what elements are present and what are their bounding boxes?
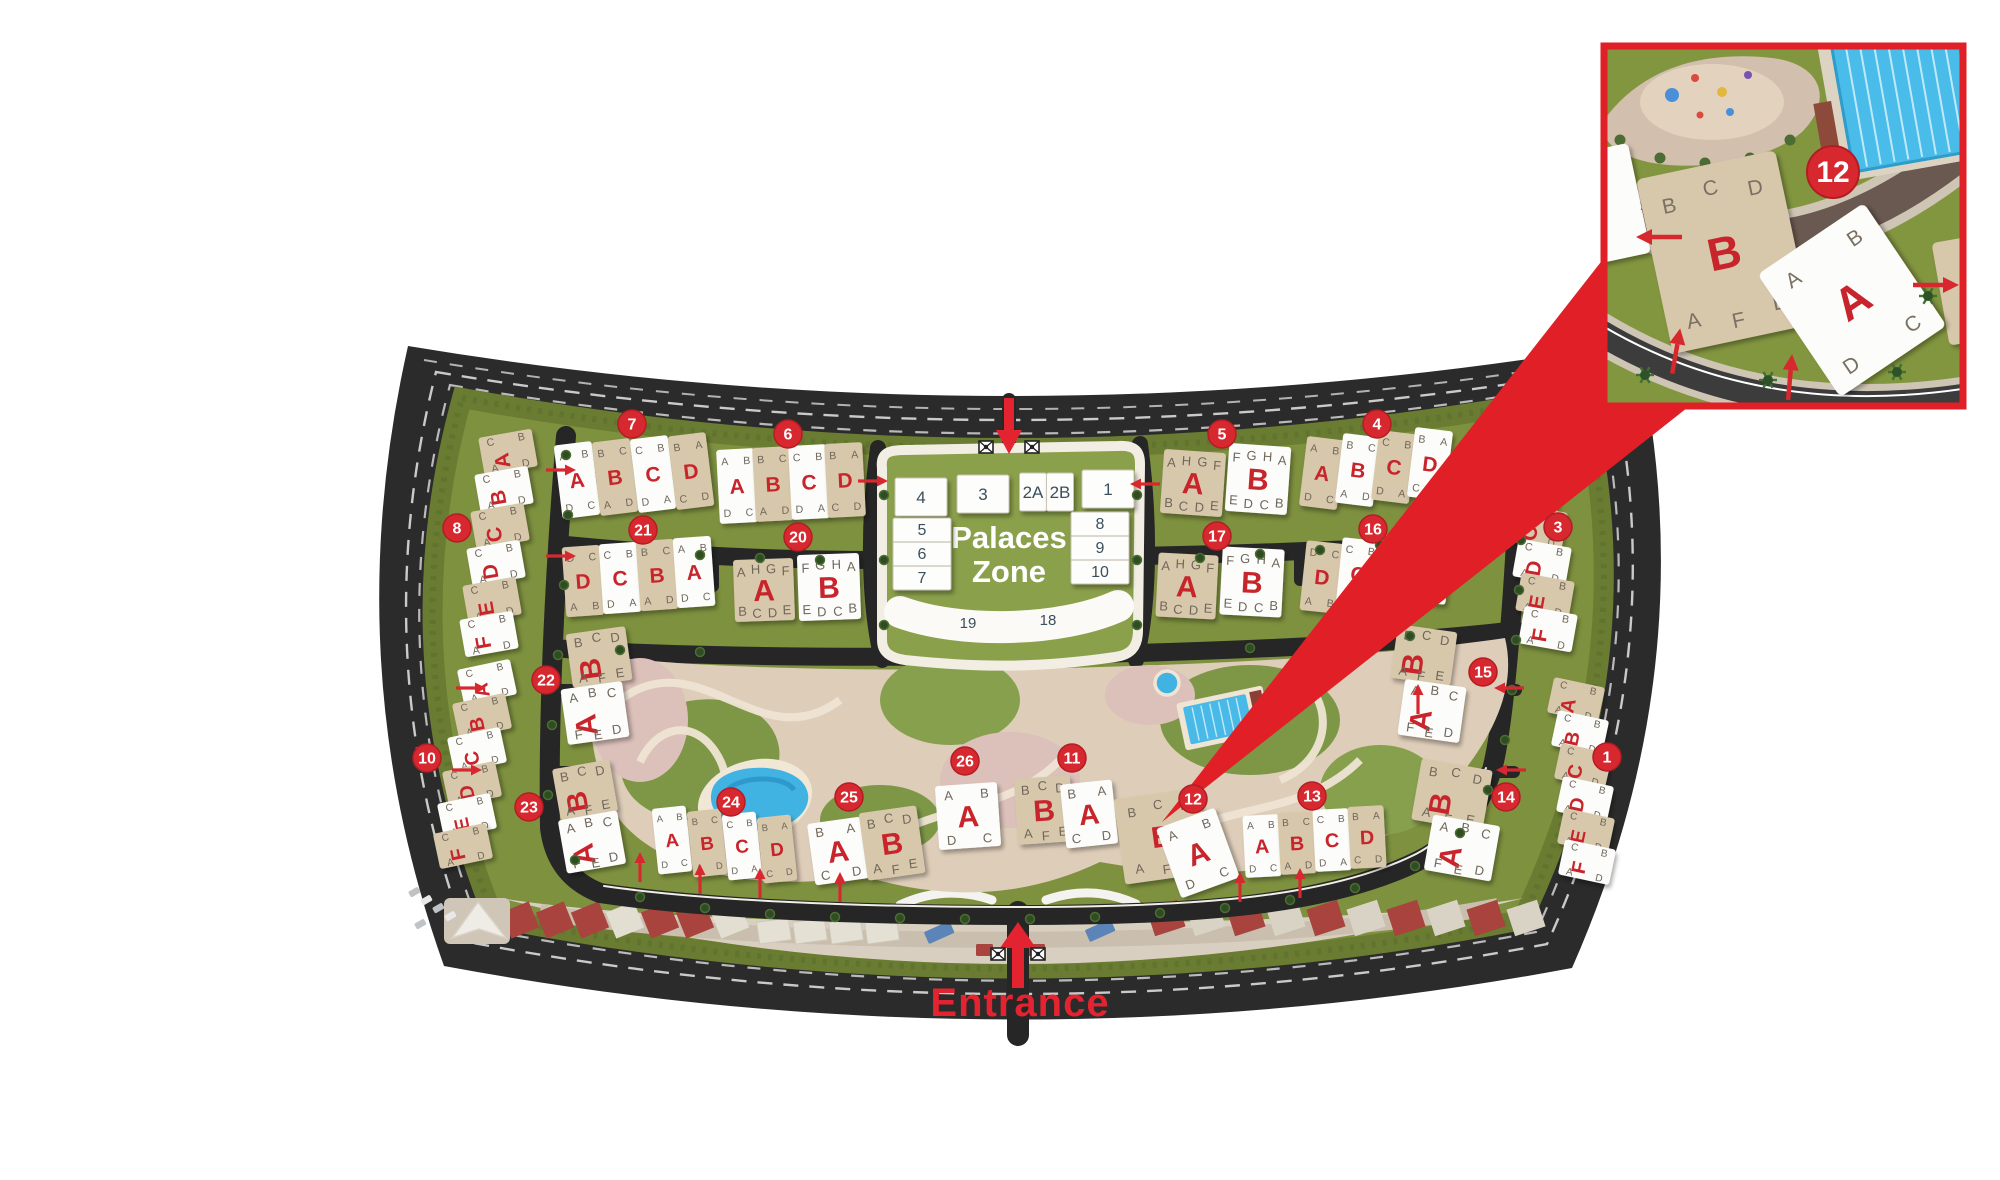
cluster-marker-13[interactable]: 13 <box>1298 782 1326 810</box>
svg-text:4: 4 <box>1373 417 1382 434</box>
building-24D[interactable]: DBACD <box>757 814 798 883</box>
unit-letter: D <box>785 867 793 879</box>
gate-icon <box>991 948 1005 960</box>
cluster-marker-8[interactable]: 8 <box>443 514 471 542</box>
unit-letter: C <box>680 858 688 870</box>
unit-letter: H <box>1181 453 1191 469</box>
unit-letter: H <box>1262 449 1272 465</box>
cluster-marker-26[interactable]: 26 <box>951 747 979 775</box>
unit-letter: D <box>853 501 862 513</box>
svg-text:21: 21 <box>634 523 652 540</box>
svg-text:3: 3 <box>1554 520 1563 537</box>
building-letter: B <box>1289 833 1304 856</box>
unit-letter: D <box>1243 496 1253 512</box>
palace-plot-7[interactable]: 7 <box>918 570 927 587</box>
unit-letter: H <box>831 557 841 572</box>
svg-text:7: 7 <box>918 570 927 587</box>
unit-letter: B <box>676 812 683 824</box>
svg-text:8: 8 <box>453 521 462 538</box>
cluster-marker-3[interactable]: 3 <box>1544 513 1572 541</box>
unit-letter: B <box>1282 818 1290 829</box>
unit-letter: B <box>1274 495 1284 511</box>
unit-letter: A <box>1161 558 1171 573</box>
master-plan-page: Palaces Zone 432A2B156789101918 AABDCBBC… <box>0 0 2000 1180</box>
unit-letter: B <box>592 600 600 612</box>
unit-letter: A <box>1247 821 1255 832</box>
svg-text:14: 14 <box>1497 790 1515 807</box>
building-letter: C <box>734 835 750 857</box>
unit-letter: G <box>1197 454 1208 470</box>
unit-letter: B <box>1331 445 1340 458</box>
building-letter: D <box>682 460 700 485</box>
unit-letter: D <box>607 598 616 611</box>
svg-text:10: 10 <box>1091 564 1109 581</box>
unit-letter: B <box>1418 433 1427 446</box>
building-letter: A <box>1313 462 1331 487</box>
cluster-marker-11[interactable]: 11 <box>1058 744 1086 772</box>
building-25B[interactable]: BBCDAFE <box>859 805 926 880</box>
unit-letter: B <box>673 442 682 455</box>
cluster-marker-16[interactable]: 16 <box>1359 515 1387 543</box>
unit-letter: B <box>761 823 768 835</box>
unit-letter: F <box>781 563 790 578</box>
svg-text:1: 1 <box>1603 750 1612 767</box>
svg-text:12: 12 <box>1184 792 1202 809</box>
svg-text:2B: 2B <box>1050 483 1071 502</box>
building-21C[interactable]: CCBDA <box>599 542 642 614</box>
unit-letter: B <box>625 548 633 560</box>
unit-letter: D <box>781 505 790 517</box>
unit-letter: A <box>1284 861 1292 872</box>
gate-icon <box>1025 441 1039 453</box>
unit-letter: B <box>1067 786 1077 802</box>
inset-marker-12: 12 <box>1807 146 1859 198</box>
playground-equipment <box>1744 71 1752 79</box>
svg-text:20: 20 <box>789 530 807 547</box>
unit-letter: D <box>731 866 739 878</box>
building-13D[interactable]: DBACD <box>1347 805 1386 869</box>
unit-letter: A <box>847 559 857 574</box>
cluster-11: BBCDAFEABACD <box>1014 775 1118 848</box>
cluster-6: AABDCBBCADCCBDADBACD <box>716 442 866 524</box>
cluster-marker-21[interactable]: 21 <box>629 516 657 544</box>
building-22A[interactable]: AABCFED <box>560 681 629 747</box>
palace-plot-2A[interactable]: 2A <box>1020 473 1047 511</box>
unit-letter: B <box>829 450 837 462</box>
unit-letter: C <box>1345 544 1354 557</box>
unit-letter: B <box>746 818 753 830</box>
svg-text:11: 11 <box>1064 751 1081 768</box>
building-20A[interactable]: AAHGFBCDE <box>733 558 795 622</box>
palaces-zone-title-line1: Palaces <box>951 520 1067 555</box>
building-letter: D <box>769 838 785 860</box>
svg-text:26: 26 <box>956 754 974 771</box>
unit-letter: B <box>640 547 648 559</box>
unit-letter: A <box>1277 453 1287 469</box>
building-letter: B <box>1032 794 1056 828</box>
building-letter: A <box>686 561 703 585</box>
svg-text:8: 8 <box>1096 516 1105 533</box>
cluster-marker-1[interactable]: 1 <box>1593 743 1621 771</box>
svg-text:4: 4 <box>916 488 925 507</box>
svg-text:17: 17 <box>1208 529 1226 546</box>
svg-text:13: 13 <box>1303 789 1321 806</box>
unit-letter: D <box>817 604 827 619</box>
unit-letter: B <box>980 785 990 801</box>
cluster-marker-7[interactable]: 7 <box>618 410 646 438</box>
svg-text:7: 7 <box>628 417 637 434</box>
cluster-marker-24[interactable]: 24 <box>717 788 745 816</box>
unit-letter: C <box>1270 863 1278 874</box>
unit-letter: C <box>793 452 802 464</box>
svg-text:23: 23 <box>520 800 538 817</box>
building-5B[interactable]: BFGHAEDCB <box>1225 443 1292 515</box>
svg-text:1: 1 <box>1103 480 1112 499</box>
svg-text:16: 16 <box>1364 522 1382 539</box>
unit-letter: B <box>1346 439 1355 452</box>
unit-letter: H <box>751 562 761 577</box>
unit-letter: A <box>944 788 954 804</box>
unit-letter: A <box>1340 857 1348 868</box>
unit-letter: B <box>1159 598 1168 613</box>
unit-letter: D <box>946 832 956 848</box>
palace-plot-6[interactable]: 6 <box>918 546 927 563</box>
unit-letter: B <box>743 455 751 467</box>
svg-text:2A: 2A <box>1023 483 1044 502</box>
palace-plot-9[interactable]: 9 <box>1096 540 1105 557</box>
svg-text:5: 5 <box>1218 427 1227 444</box>
unit-letter: C <box>1037 778 1047 794</box>
building-letter: A <box>753 574 776 608</box>
unit-letter: C <box>982 830 992 846</box>
building-letter: D <box>575 570 592 594</box>
svg-text:6: 6 <box>784 427 793 444</box>
unit-letter: D <box>1238 599 1248 614</box>
unit-letter: B <box>597 448 606 461</box>
svg-text:25: 25 <box>840 790 858 807</box>
cluster-marker-23[interactable]: 23 <box>515 793 543 821</box>
unit-letter: C <box>752 606 762 621</box>
unit-letter: G <box>1246 448 1257 464</box>
cluster-marker-4[interactable]: 4 <box>1363 410 1391 438</box>
cluster-21: DDCABCCBDABBCADAABDC <box>562 536 716 617</box>
building-letter: C <box>1324 830 1339 853</box>
building-25A[interactable]: ABACD <box>807 817 869 886</box>
unit-letter: D <box>1375 854 1383 865</box>
unit-letter: D <box>723 508 732 520</box>
unit-letter: B <box>815 451 823 463</box>
building-letter: A <box>1181 467 1205 501</box>
unit-letter: F <box>1041 828 1050 844</box>
palace-plot-2B[interactable]: 2B <box>1047 473 1074 511</box>
unit-letter: B <box>1164 495 1174 511</box>
palace-plot-8[interactable]: 8 <box>1096 516 1105 533</box>
gate-icon <box>1031 948 1045 960</box>
unit-letter: C <box>662 545 671 558</box>
cluster-marker-20[interactable]: 20 <box>784 523 812 551</box>
unit-letter: D <box>1101 827 1112 843</box>
unit-letter: C <box>726 820 734 832</box>
unit-letter: C <box>833 604 843 619</box>
building-letter: B <box>699 832 715 854</box>
building-17A[interactable]: AAHGFBCDE <box>1155 552 1218 619</box>
building-24C[interactable]: CCBDA <box>722 811 763 880</box>
palaces-zone-title-line2: Zone <box>972 554 1046 589</box>
master-plan-map: Palaces Zone 432A2B156789101918 AABDCBBC… <box>0 0 2000 1180</box>
unit-letter: D <box>1194 499 1204 515</box>
cluster-marker-6[interactable]: 6 <box>774 420 802 448</box>
building-letter: B <box>1349 459 1367 484</box>
unit-letter: A <box>1373 811 1381 822</box>
playground-equipment <box>1726 108 1734 116</box>
unit-letter: B <box>1268 820 1276 831</box>
building-6B[interactable]: BBCAD <box>752 446 794 522</box>
unit-letter: C <box>1331 549 1340 562</box>
unit-letter: E <box>1229 492 1239 508</box>
unit-letter: G <box>1240 551 1251 567</box>
unit-letter: E <box>1210 498 1220 514</box>
cluster-marker-10[interactable]: 10 <box>413 744 441 772</box>
svg-text:3: 3 <box>978 485 987 504</box>
unit-letter: C <box>603 549 612 562</box>
building-letter: C <box>612 567 629 591</box>
unit-letter: F <box>1213 458 1222 474</box>
unit-letter: D <box>795 504 804 516</box>
building-letter: A <box>1077 798 1101 832</box>
unit-letter: D <box>661 860 669 872</box>
svg-text:12: 12 <box>1816 156 1849 189</box>
unit-letter: F <box>1232 449 1241 465</box>
palace-plot-18: 18 <box>1040 612 1057 629</box>
detail-inset[interactable]: A BBCDAFEAABDC 12 <box>1538 11 2000 406</box>
building-13A[interactable]: AABDC <box>1242 814 1281 878</box>
unit-letter: B <box>1338 814 1346 825</box>
building-13C[interactable]: CCBDA <box>1312 808 1351 872</box>
building-letter: B <box>1240 566 1263 600</box>
cluster-marker-5[interactable]: 5 <box>1208 420 1236 448</box>
unit-letter: C <box>588 551 597 564</box>
building-letter: C <box>1385 456 1403 481</box>
unit-letter: D <box>1249 864 1257 875</box>
unit-letter: A <box>737 565 747 580</box>
unit-letter: C <box>1178 498 1188 514</box>
unit-letter: B <box>1269 598 1278 613</box>
canopy-tent <box>444 898 510 944</box>
unit-letter: C <box>703 591 712 604</box>
unit-letter: E <box>1203 601 1213 616</box>
unit-letter: D <box>1188 602 1198 617</box>
building-5A[interactable]: AAHGFBCDE <box>1160 449 1226 517</box>
cluster-marker-25[interactable]: 25 <box>835 783 863 811</box>
building-letter: C <box>801 471 817 495</box>
building-letter: A <box>956 800 980 834</box>
building-letter: B <box>765 473 781 497</box>
building-17B[interactable]: BFGHAEDCB <box>1219 546 1284 617</box>
unit-letter: B <box>848 600 857 615</box>
cluster-marker-17[interactable]: 17 <box>1203 522 1231 550</box>
small-pond <box>1155 671 1179 695</box>
unit-letter: E <box>802 602 812 617</box>
playground-equipment <box>1717 87 1727 97</box>
unit-letter: D <box>666 594 675 607</box>
unit-letter: C <box>766 869 774 881</box>
cluster-13: AABDCBBCADCCBDADBACD <box>1242 805 1386 878</box>
unit-letter: B <box>581 448 590 461</box>
unit-letter: C <box>1254 600 1264 615</box>
svg-text:10: 10 <box>418 751 436 768</box>
building-letter: B <box>1246 463 1270 497</box>
building-letter: B <box>818 571 841 605</box>
unit-letter: B <box>657 442 666 455</box>
unit-letter: F <box>801 560 810 575</box>
unit-letter: A <box>1167 455 1177 471</box>
unit-letter: C <box>1317 815 1325 826</box>
building-11A[interactable]: ABACD <box>1060 779 1118 848</box>
unit-letter: H <box>1175 556 1185 571</box>
building-letter: B <box>649 564 666 588</box>
unit-letter: C <box>1071 831 1082 847</box>
unit-letter: E <box>1223 596 1233 611</box>
palace-plot-1[interactable]: 1 <box>1082 470 1134 508</box>
unit-letter: C <box>745 507 754 519</box>
building-letter: A <box>729 475 745 499</box>
building-letter: A <box>664 829 680 851</box>
unit-letter: B <box>1352 812 1360 823</box>
building-24A[interactable]: AABDC <box>652 805 693 874</box>
unit-letter: B <box>1403 439 1412 452</box>
unit-letter: A <box>1023 826 1033 842</box>
building-letter: A <box>1254 836 1269 859</box>
unit-letter: C <box>1173 602 1183 617</box>
unit-letter: A <box>1271 555 1281 570</box>
palace-plot-4[interactable]: 4 <box>895 478 947 516</box>
unit-letter: D <box>1305 860 1313 871</box>
building-letter: B <box>879 826 905 862</box>
unit-letter: F <box>1226 553 1235 568</box>
cluster-marker-22[interactable]: 22 <box>532 666 560 694</box>
building-letter: D <box>1359 827 1374 850</box>
building-21B[interactable]: BBCAD <box>636 539 679 611</box>
unit-letter: C <box>779 453 788 465</box>
building-6C[interactable]: CCBDA <box>788 444 830 520</box>
building-letter: B <box>606 466 624 491</box>
gate-icon <box>979 441 993 453</box>
cluster-marker-14[interactable]: 14 <box>1492 783 1520 811</box>
svg-text:5: 5 <box>918 522 927 539</box>
unit-letter: B <box>738 604 747 619</box>
cluster-marker-12[interactable]: 12 <box>1179 785 1207 813</box>
building-24B[interactable]: BBCAD <box>687 808 728 877</box>
building-letter: C <box>644 463 662 488</box>
unit-letter: D <box>715 861 723 873</box>
building-22B[interactable]: BBCDAFE <box>565 626 632 690</box>
unit-letter: C <box>1259 497 1269 513</box>
building-letter: D <box>837 469 853 493</box>
cluster-26: AABDC <box>935 782 1001 850</box>
unit-letter: D <box>768 605 778 620</box>
unit-letter: G <box>766 561 777 576</box>
svg-text:22: 22 <box>537 673 555 690</box>
cluster-marker-15[interactable]: 15 <box>1469 658 1497 686</box>
unit-letter: B <box>1020 782 1030 798</box>
building-15A[interactable]: AABCFED <box>1397 679 1466 745</box>
building-letter: A <box>1175 570 1198 604</box>
building-letter: A <box>825 834 851 870</box>
unit-letter: F <box>1206 560 1215 575</box>
building-20B[interactable]: BFGHAEDCB <box>797 553 861 621</box>
building-13B[interactable]: BBCAD <box>1277 811 1316 875</box>
building-6A[interactable]: AABDC <box>716 448 758 524</box>
unit-letter: C <box>1302 817 1310 828</box>
unit-letter: C <box>1354 855 1362 866</box>
unit-letter: C <box>831 502 840 514</box>
entrance-label: Entrance <box>930 981 1109 1025</box>
building-21A[interactable]: AABDC <box>673 536 716 608</box>
playground-equipment <box>1665 88 1679 102</box>
palace-plot-10[interactable]: 10 <box>1091 564 1109 581</box>
unit-letter: E <box>782 602 792 617</box>
palace-plot-3[interactable]: 3 <box>957 475 1009 513</box>
svg-text:6: 6 <box>918 546 927 563</box>
building-26A[interactable]: AABDC <box>935 782 1001 850</box>
unit-letter: B <box>691 817 698 829</box>
svg-text:9: 9 <box>1096 540 1105 557</box>
unit-letter: B <box>757 454 765 466</box>
building-letter: D <box>1313 566 1330 590</box>
playground-equipment <box>1691 74 1699 82</box>
palace-plot-5[interactable]: 5 <box>918 522 927 539</box>
playground-equipment <box>1697 112 1704 119</box>
unit-letter: D <box>1319 858 1327 869</box>
svg-text:15: 15 <box>1474 665 1492 682</box>
unit-letter: C <box>711 815 719 827</box>
palace-plot-19: 19 <box>960 615 977 632</box>
unit-letter: D <box>681 592 690 605</box>
svg-text:24: 24 <box>722 795 740 812</box>
